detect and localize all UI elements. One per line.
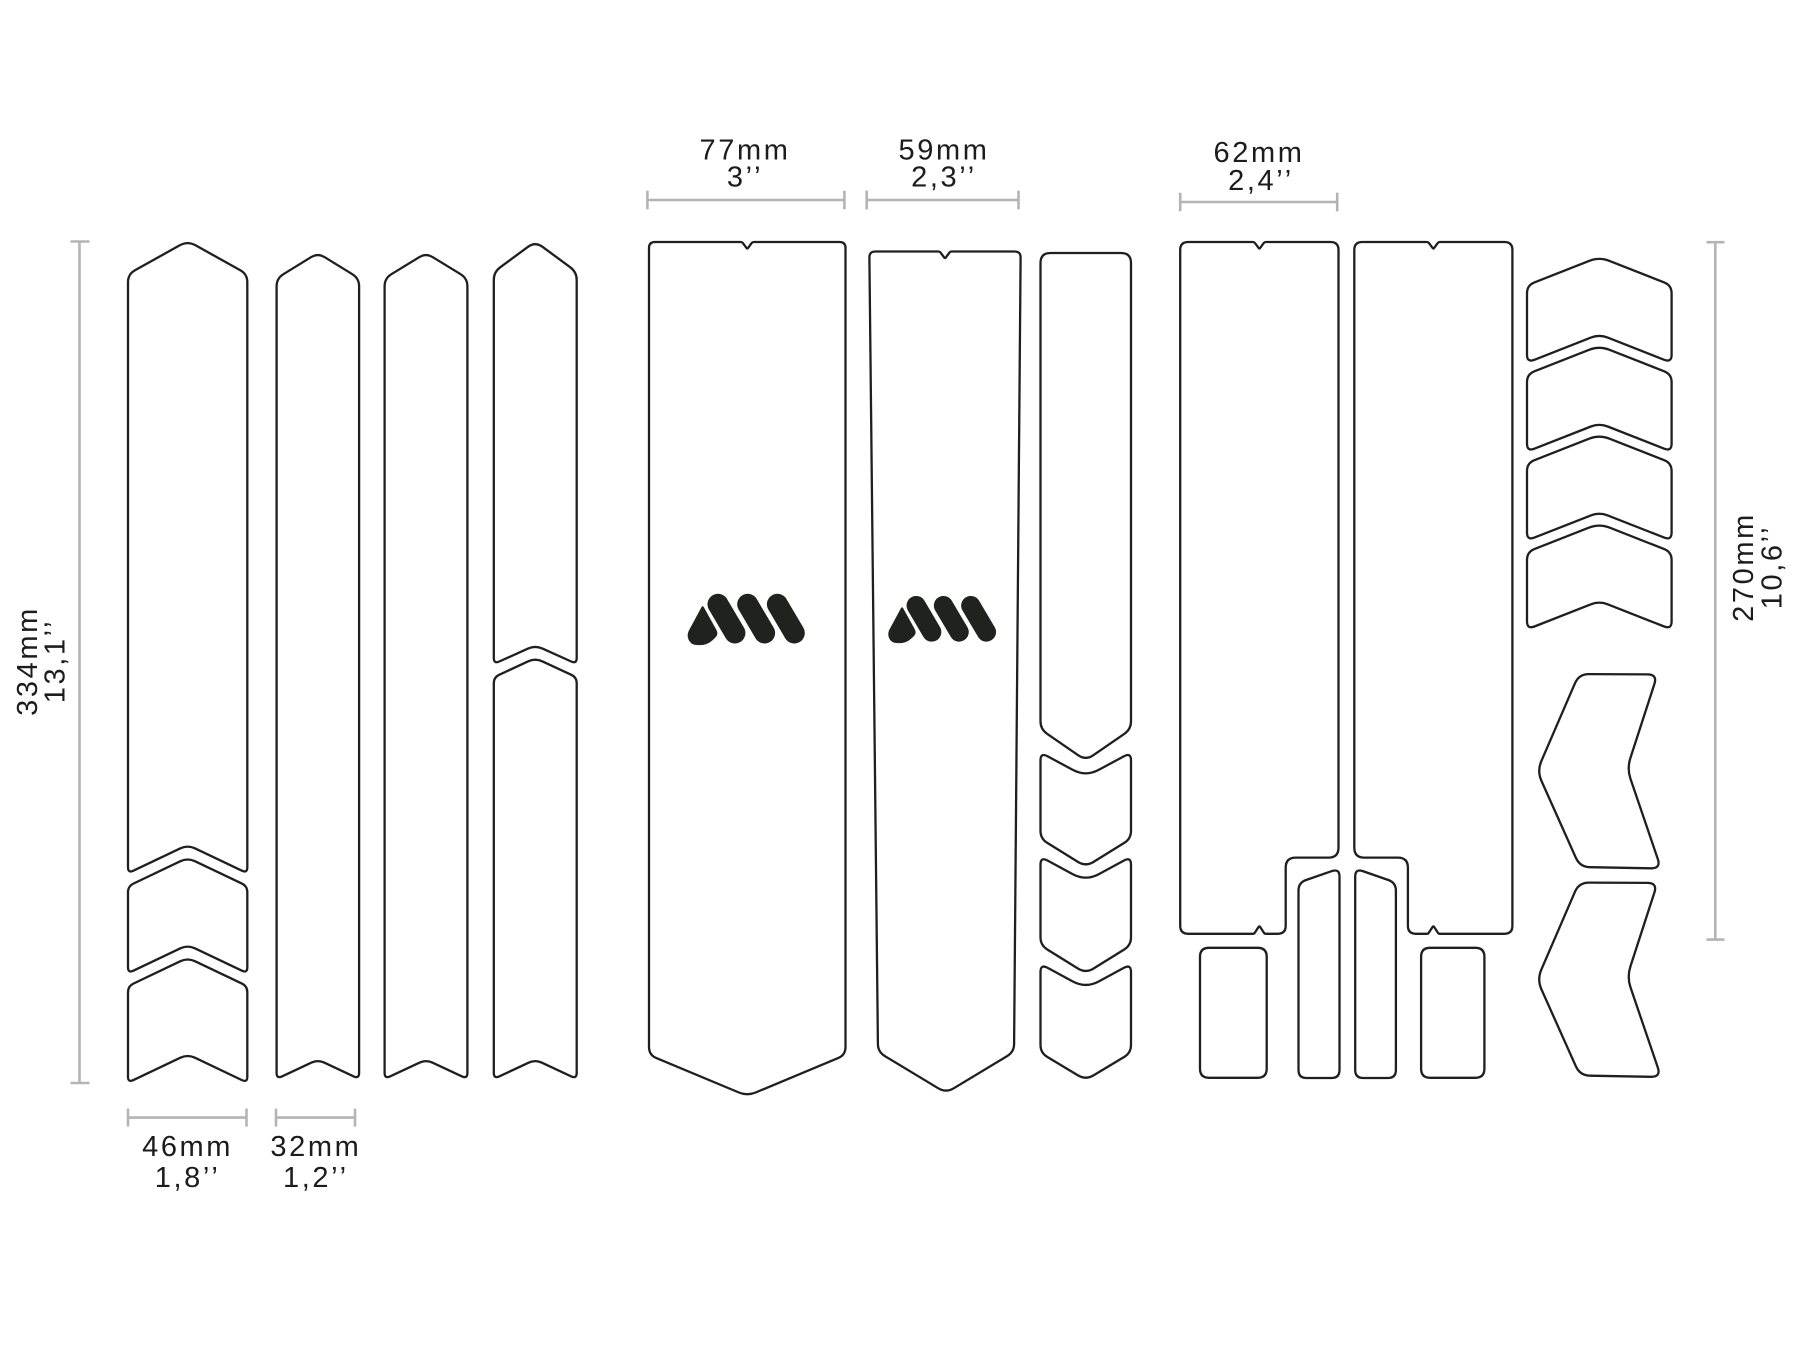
svg-text:32mm: 32mm	[270, 1131, 361, 1163]
svg-text:13,1’’: 13,1’’	[40, 619, 72, 703]
svg-text:1,2’’: 1,2’’	[283, 1162, 349, 1194]
svg-text:2,4’’: 2,4’’	[1228, 165, 1294, 197]
svg-text:46mm: 46mm	[142, 1131, 233, 1163]
svg-text:1,8’’: 1,8’’	[155, 1162, 221, 1194]
svg-text:10,6’’: 10,6’’	[1757, 525, 1789, 609]
svg-text:3’’: 3’’	[727, 162, 763, 194]
svg-text:270mm: 270mm	[1728, 512, 1760, 622]
svg-text:2,3’’: 2,3’’	[911, 162, 977, 194]
